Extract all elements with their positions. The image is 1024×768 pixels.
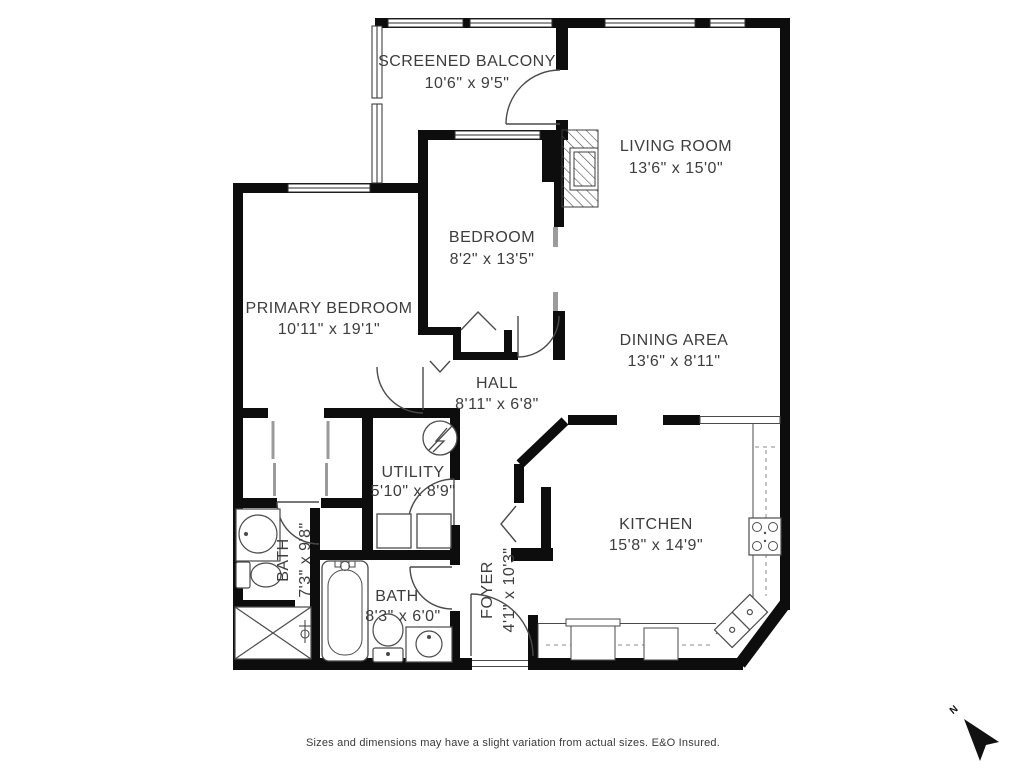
disclaimer-text: Sizes and dimensions may have a slight v… bbox=[306, 737, 720, 749]
svg-text:BATH: BATH bbox=[275, 538, 292, 581]
washer-icon bbox=[377, 514, 411, 548]
fireplace-icon bbox=[562, 130, 598, 207]
north-arrow-icon: N bbox=[948, 703, 999, 761]
pantry-bifold-icon bbox=[501, 506, 516, 542]
svg-text:4'1" x 10'3": 4'1" x 10'3" bbox=[501, 548, 518, 633]
sliding-panel-strips bbox=[553, 227, 558, 311]
svg-text:BEDROOM: BEDROOM bbox=[449, 229, 535, 246]
svg-text:8'11" x 6'8": 8'11" x 6'8" bbox=[455, 396, 539, 413]
room-label-hall: HALL 8'11" x 6'8" bbox=[455, 375, 539, 413]
room-label-bath-second: BATH 8'3" x 6'0" bbox=[365, 588, 440, 625]
room-label-utility: UTILITY 5'10" x 8'9" bbox=[371, 464, 456, 500]
room-label-bath-main: BATH 7'3" x 9'8" bbox=[275, 522, 314, 597]
window bbox=[470, 19, 552, 27]
bedroom-closet-bifold-icon bbox=[461, 312, 496, 330]
svg-text:HALL: HALL bbox=[476, 375, 518, 392]
stove-icon bbox=[749, 518, 781, 555]
room-label-kitchen: KITCHEN 15'8" x 14'9" bbox=[609, 516, 703, 554]
svg-text:SCREENED BALCONY: SCREENED BALCONY bbox=[378, 53, 556, 70]
bedroom-door-swing bbox=[518, 316, 559, 357]
svg-text:10'11" x 19'1": 10'11" x 19'1" bbox=[278, 321, 380, 338]
svg-text:KITCHEN: KITCHEN bbox=[619, 516, 693, 533]
floor-plan-page: SCREENED BALCONY 10'6" x 9'5" LIVING ROO… bbox=[0, 0, 1024, 768]
svg-text:13'6" x 8'11": 13'6" x 8'11" bbox=[627, 353, 720, 370]
svg-text:BATH: BATH bbox=[375, 588, 418, 605]
north-label: N bbox=[948, 703, 961, 716]
window bbox=[710, 19, 745, 27]
primary-bedroom-door-swing bbox=[377, 367, 423, 413]
water-heater-icon bbox=[423, 421, 457, 455]
room-label-primary-bedroom: PRIMARY BEDROOM 10'11" x 19'1" bbox=[246, 300, 413, 338]
bath-second-vanity-sink-icon bbox=[406, 627, 452, 662]
dryer-icon bbox=[417, 514, 451, 548]
floor-plan-drawing: SCREENED BALCONY 10'6" x 9'5" LIVING ROO… bbox=[0, 0, 1024, 768]
shower-closet-icon bbox=[235, 607, 311, 659]
window bbox=[388, 19, 463, 27]
svg-text:7'3" x 9'8": 7'3" x 9'8" bbox=[297, 522, 314, 597]
svg-text:DINING AREA: DINING AREA bbox=[620, 332, 729, 349]
svg-text:5'10" x 8'9": 5'10" x 8'9" bbox=[371, 483, 456, 500]
window bbox=[288, 184, 370, 192]
room-label-living-room: LIVING ROOM 13'6" x 15'0" bbox=[620, 138, 732, 177]
svg-text:FOYER: FOYER bbox=[479, 561, 496, 619]
balcony-door-swing bbox=[506, 70, 560, 124]
svg-text:13'6" x 15'0": 13'6" x 15'0" bbox=[629, 160, 723, 177]
window bbox=[605, 19, 695, 27]
closet-rod-icon bbox=[273, 421, 328, 496]
room-label-foyer: FOYER 4'1" x 10'3" bbox=[479, 548, 518, 633]
screen-window bbox=[372, 104, 382, 183]
bath-main-vanity-sink-icon bbox=[236, 509, 280, 561]
svg-text:8'2" x 13'5": 8'2" x 13'5" bbox=[450, 251, 535, 268]
svg-text:LIVING ROOM: LIVING ROOM bbox=[620, 138, 732, 155]
room-label-dining-area: DINING AREA 13'6" x 8'11" bbox=[620, 332, 729, 370]
svg-text:15'8" x 14'9": 15'8" x 14'9" bbox=[609, 537, 703, 554]
bathtub-icon bbox=[322, 561, 368, 661]
room-label-screened-balcony: SCREENED BALCONY 10'6" x 9'5" bbox=[378, 53, 556, 92]
room-label-bedroom: BEDROOM 8'2" x 13'5" bbox=[449, 229, 535, 268]
svg-text:8'3" x 6'0": 8'3" x 6'0" bbox=[365, 608, 440, 625]
svg-text:10'6" x 9'5": 10'6" x 9'5" bbox=[425, 75, 510, 92]
svg-text:PRIMARY BEDROOM: PRIMARY BEDROOM bbox=[246, 300, 413, 317]
svg-text:UTILITY: UTILITY bbox=[381, 464, 444, 481]
window bbox=[455, 131, 540, 139]
hall-opening-chevron-icon bbox=[430, 361, 450, 372]
